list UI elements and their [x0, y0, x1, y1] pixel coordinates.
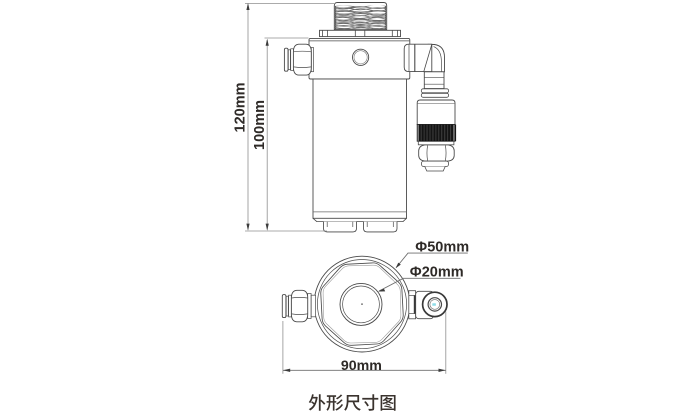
svg-text:Φ50mm: Φ50mm [415, 240, 469, 256]
svg-text:100mm: 100mm [252, 100, 268, 150]
svg-text:120mm: 120mm [232, 83, 248, 133]
svg-text:Φ20mm: Φ20mm [410, 265, 464, 281]
svg-text:90mm: 90mm [341, 358, 382, 374]
